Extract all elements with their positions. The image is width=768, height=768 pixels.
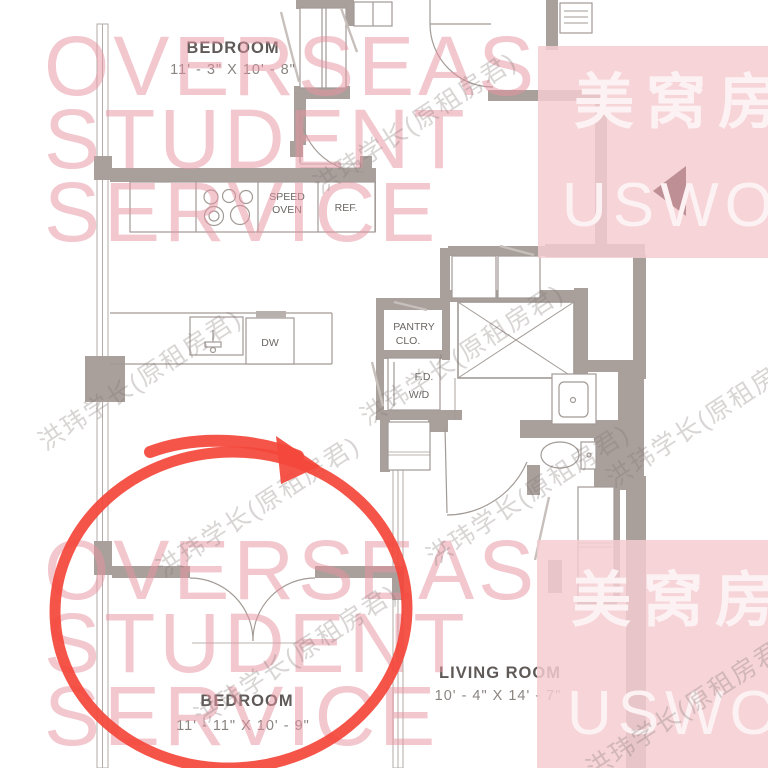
red-arrowhead: [276, 436, 320, 484]
floorplan-screenshot: BEDROOM 11' - 3" X 10' - 8" SPEED OVEN R…: [0, 0, 768, 768]
red-circle-annotation: [0, 0, 768, 768]
